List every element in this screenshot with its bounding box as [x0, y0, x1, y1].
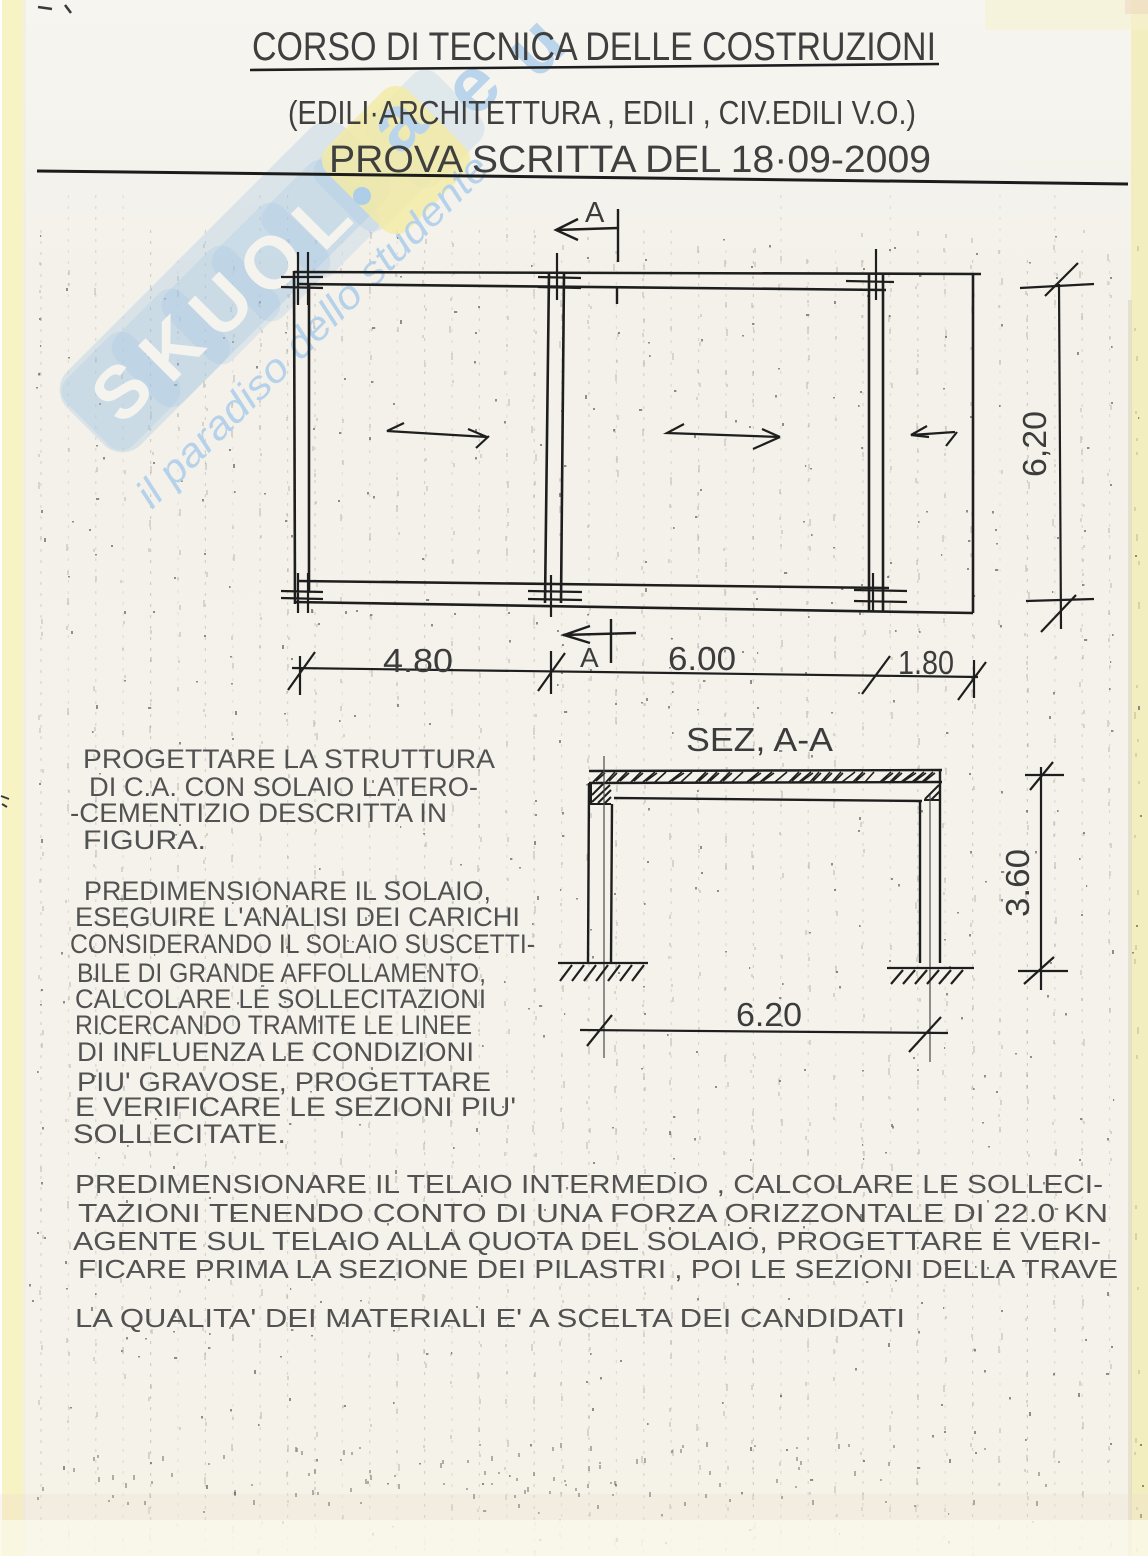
- svg-text:6,20: 6,20: [1016, 411, 1053, 477]
- svg-text:A: A: [580, 642, 599, 673]
- svg-text:(EDILI·ARCHITETTURA , EDILI ,: (EDILI·ARCHITETTURA , EDILI , CIV.EDILI …: [288, 94, 916, 131]
- svg-text:4.80: 4.80: [383, 642, 453, 679]
- svg-text:E VERIFICARE LE SEZIONI PIU': E VERIFICARE LE SEZIONI PIU': [75, 1092, 516, 1122]
- svg-text:PROGETTARE LA STRUTTURA: PROGETTARE LA STRUTTURA: [83, 744, 495, 774]
- svg-text:CONSIDERANDO IL SOLAIO SUSCETT: CONSIDERANDO IL SOLAIO SUSCETTI-: [70, 929, 535, 959]
- svg-text:LA QUALITA' DEI MATERIALI E' A: LA QUALITA' DEI MATERIALI E' A SCELTA DE…: [75, 1303, 905, 1333]
- svg-text:AGENTE SUL TELAIO ALLA QUOTA D: AGENTE SUL TELAIO ALLA QUOTA DEL SOLAIO,…: [73, 1226, 1101, 1256]
- svg-text:A: A: [585, 197, 605, 229]
- svg-text:-CEMENTIZIO DESCRITTA IN: -CEMENTIZIO DESCRITTA IN: [70, 798, 447, 828]
- svg-text:PREDIMENSIONARE IL TELAIO INTE: PREDIMENSIONARE IL TELAIO INTERMEDIO , C…: [75, 1169, 1103, 1199]
- svg-text:3.60: 3.60: [999, 849, 1036, 917]
- svg-text:FIGURA.: FIGURA.: [83, 825, 206, 855]
- svg-text:FICARE PRIMA LA SEZIONE DEI PI: FICARE PRIMA LA SEZIONE DEI PILASTRI , P…: [78, 1254, 1118, 1284]
- svg-text:ESEGUIRE L'ANALISI DEI CARICHI: ESEGUIRE L'ANALISI DEI CARICHI: [75, 902, 520, 932]
- svg-text:SEZ, A-A: SEZ, A-A: [686, 721, 833, 758]
- svg-text:RICERCANDO TRAMITE LE LINEE: RICERCANDO TRAMITE LE LINEE: [75, 1010, 472, 1040]
- svg-text:SOLLECITATE.: SOLLECITATE.: [73, 1119, 286, 1149]
- svg-text:6.00: 6.00: [668, 640, 736, 677]
- svg-text:DI INFLUENZA LE CONDIZIONI: DI INFLUENZA LE CONDIZIONI: [77, 1037, 474, 1067]
- svg-text:6.20: 6.20: [736, 996, 802, 1033]
- svg-text:CORSO DI TECNICA DELLE COSTRUZ: CORSO DI TECNICA DELLE COSTRUZIONI: [252, 25, 936, 69]
- svg-text:TAZIONI TENENDO CONTO DI UNA F: TAZIONI TENENDO CONTO DI UNA FORZA ORIZZ…: [78, 1198, 1108, 1228]
- svg-text:1.80: 1.80: [898, 644, 954, 681]
